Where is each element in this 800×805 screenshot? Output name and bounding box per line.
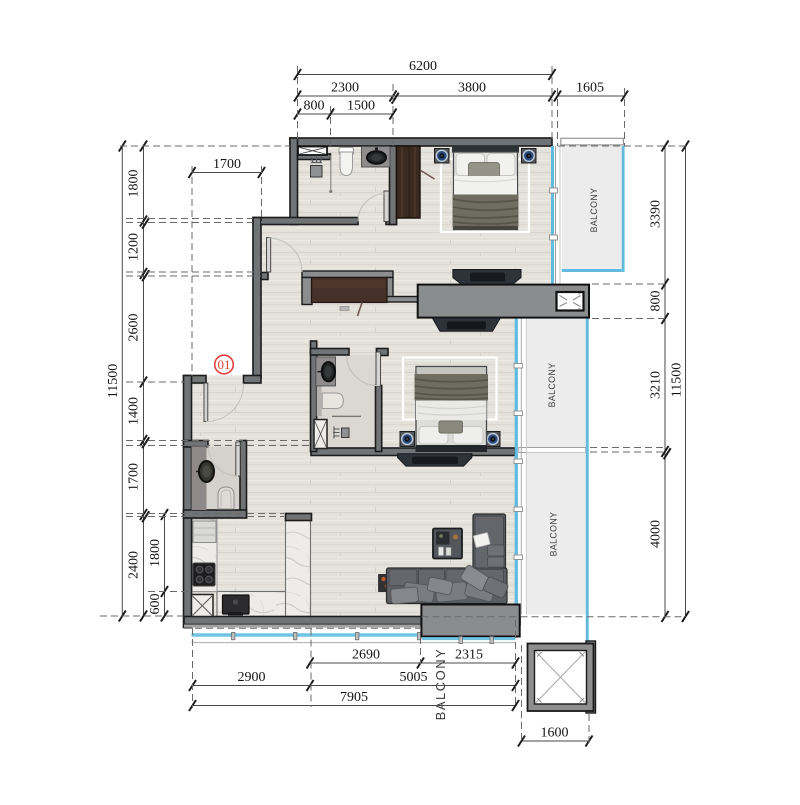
svg-text:2900: 2900 <box>238 670 266 685</box>
svg-text:1200: 1200 <box>127 233 142 261</box>
svg-text:3800: 3800 <box>458 81 486 96</box>
svg-text:1700: 1700 <box>127 463 142 491</box>
svg-text:1605: 1605 <box>576 81 604 96</box>
svg-text:BALCONY: BALCONY <box>547 363 557 408</box>
svg-text:600: 600 <box>148 594 163 615</box>
svg-text:1600: 1600 <box>541 726 569 741</box>
svg-text:1800: 1800 <box>127 170 142 198</box>
svg-text:01: 01 <box>218 357 231 372</box>
svg-text:BALCONY: BALCONY <box>589 188 599 233</box>
svg-text:2400: 2400 <box>127 551 142 579</box>
svg-text:4000: 4000 <box>649 520 664 548</box>
svg-text:BALCONY: BALCONY <box>549 512 559 557</box>
svg-text:1400: 1400 <box>127 397 142 425</box>
svg-text:BALCONY: BALCONY <box>433 648 448 721</box>
svg-text:2300: 2300 <box>331 81 359 96</box>
svg-text:1500: 1500 <box>347 99 375 114</box>
svg-text:2315: 2315 <box>455 648 483 663</box>
svg-text:2600: 2600 <box>127 314 142 342</box>
svg-text:5005: 5005 <box>400 670 428 685</box>
svg-text:1700: 1700 <box>213 157 241 172</box>
svg-text:11500: 11500 <box>670 363 685 397</box>
svg-text:7905: 7905 <box>340 690 368 705</box>
svg-text:11500: 11500 <box>106 364 121 398</box>
svg-text:3210: 3210 <box>649 371 664 399</box>
svg-text:6200: 6200 <box>409 59 437 74</box>
svg-text:3390: 3390 <box>649 200 664 228</box>
svg-text:800: 800 <box>649 291 664 312</box>
svg-text:2690: 2690 <box>352 648 380 663</box>
svg-text:800: 800 <box>304 99 325 114</box>
svg-text:1800: 1800 <box>148 539 163 567</box>
